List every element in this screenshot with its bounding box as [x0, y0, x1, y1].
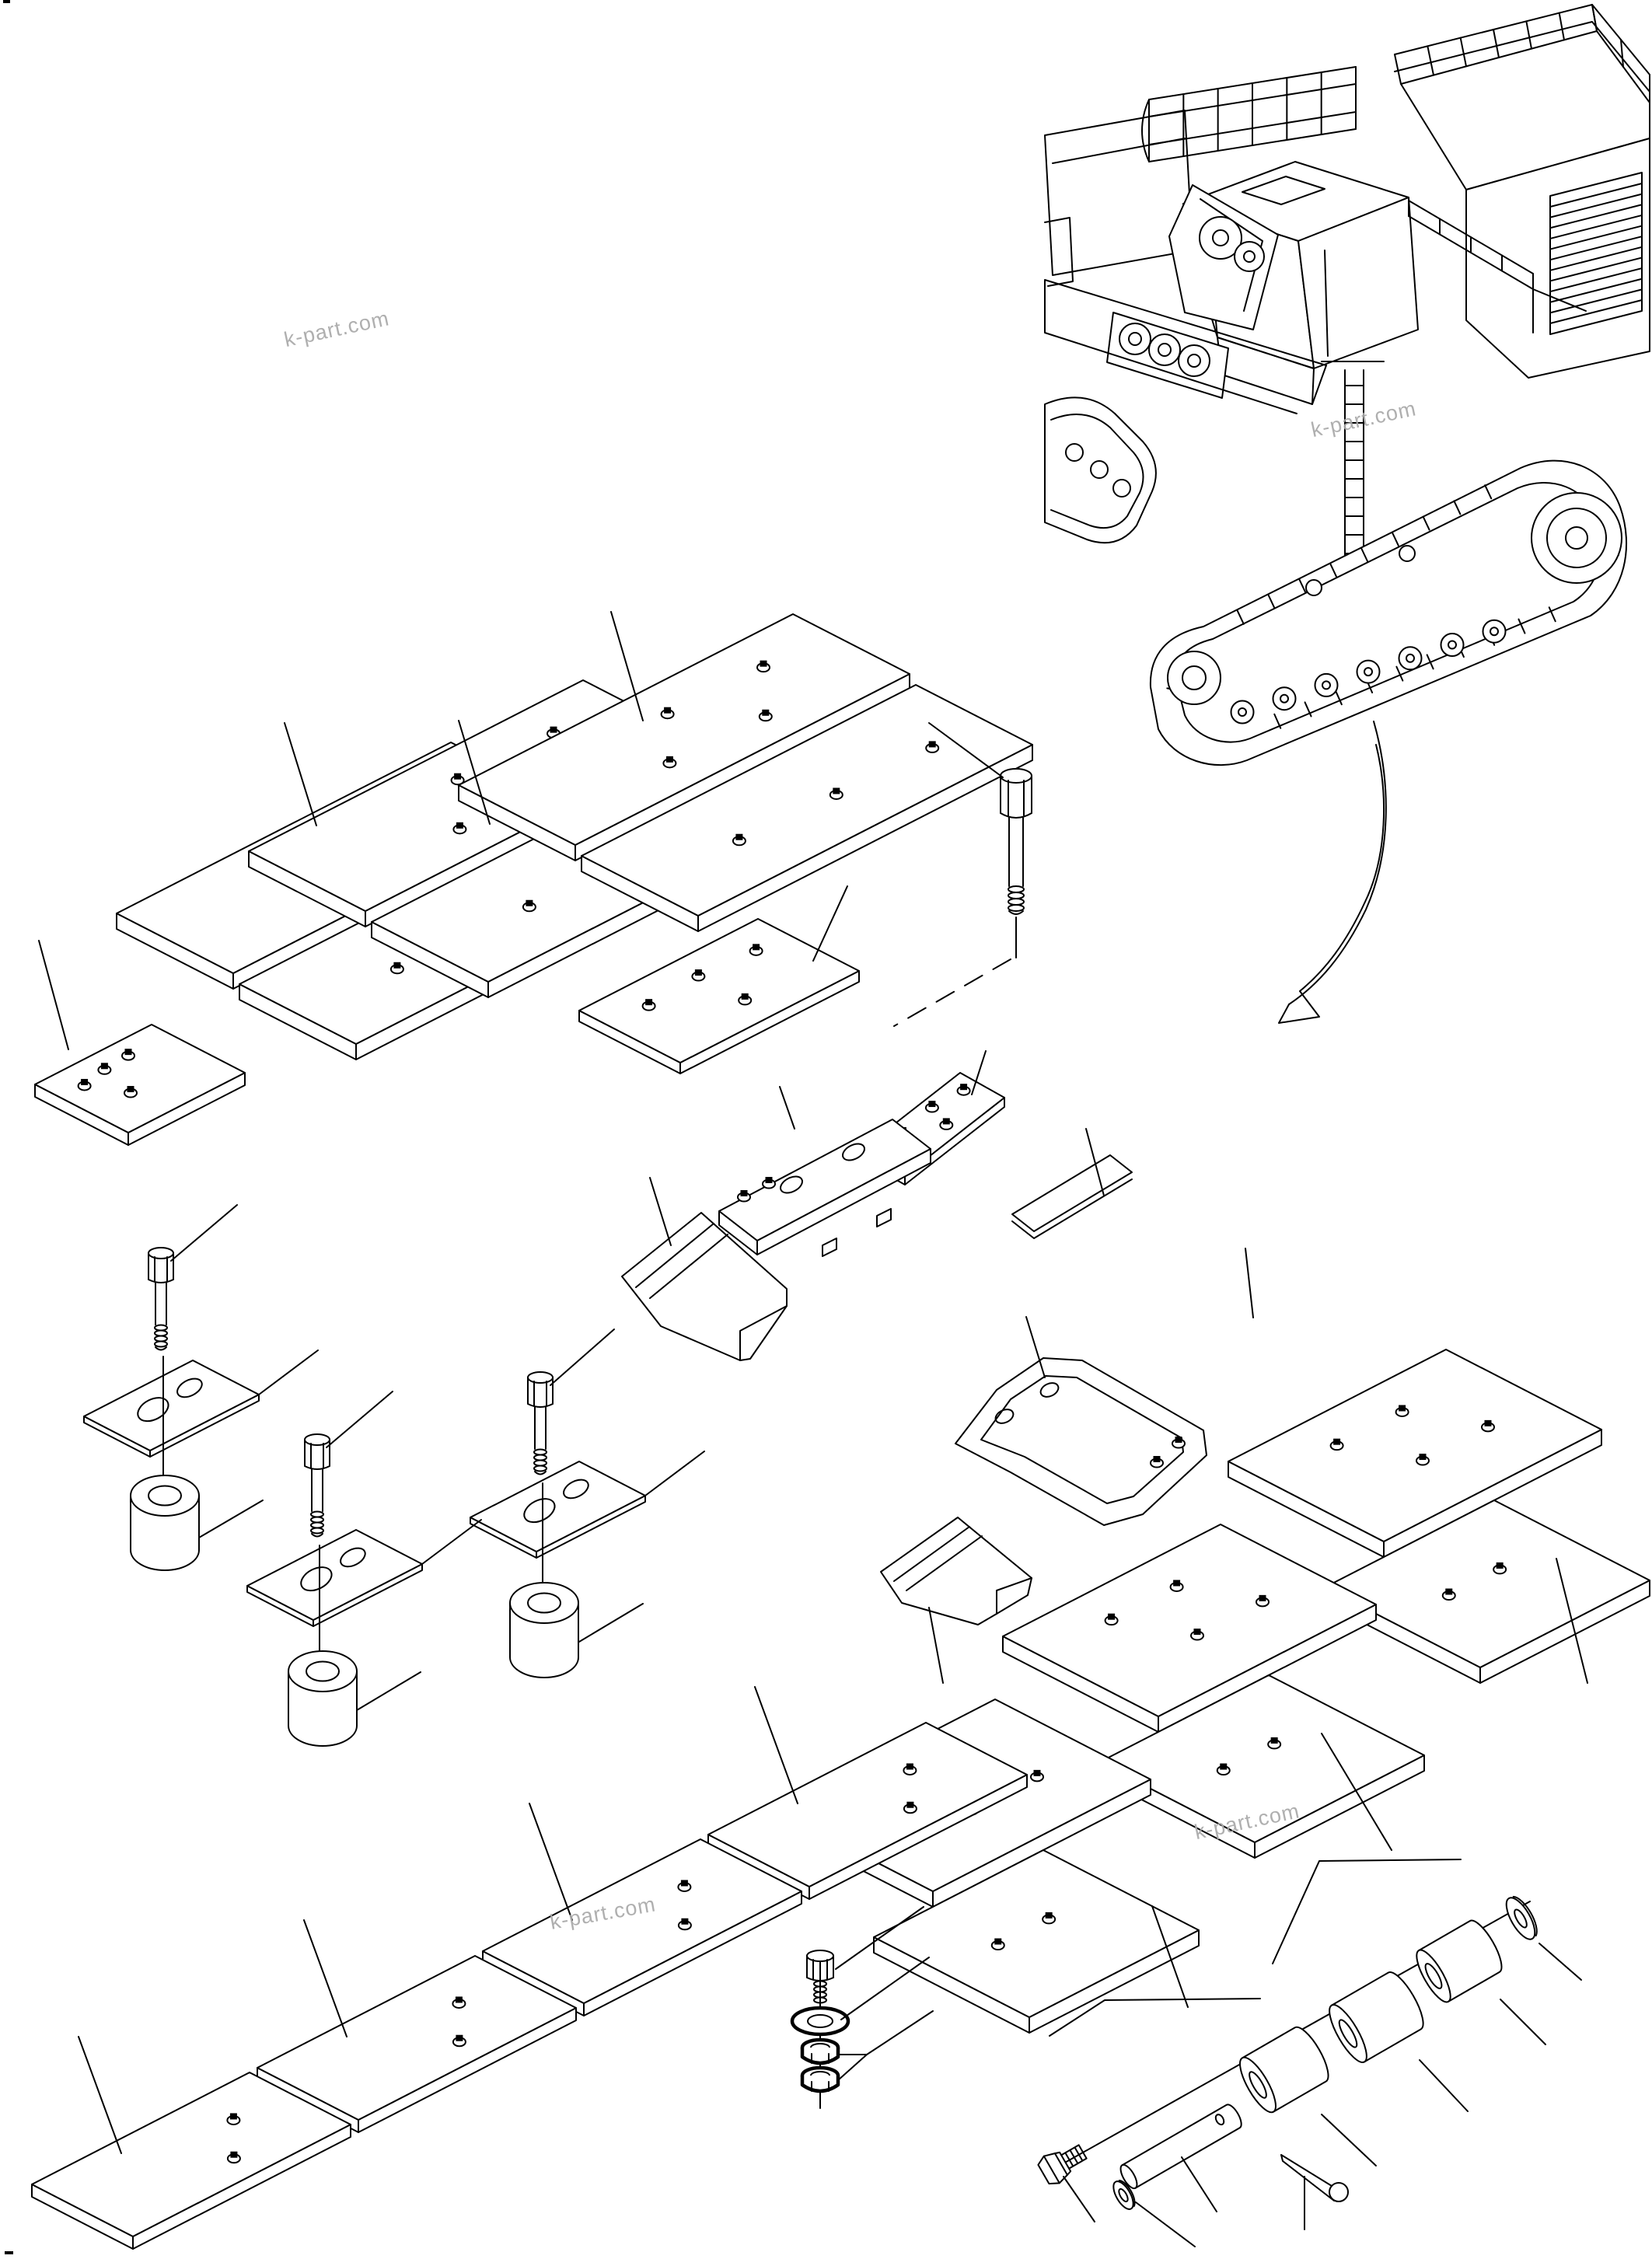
leader-line	[780, 1087, 795, 1129]
carrier-roller	[1399, 546, 1415, 561]
leader-line	[1322, 2114, 1376, 2166]
leader-line	[529, 1803, 572, 1920]
arrowhead	[1279, 991, 1319, 1023]
pin	[1117, 2102, 1244, 2191]
hex-nut-1	[802, 2040, 838, 2063]
hex-bolt-1	[148, 1248, 173, 1350]
cotter-pin	[1281, 2155, 1348, 2201]
pulley	[1235, 242, 1264, 271]
washer-plate-1	[84, 1360, 259, 1457]
leader-line	[929, 1608, 943, 1683]
leader-line	[867, 2011, 933, 2055]
road-wheel	[1315, 674, 1338, 697]
roller-3	[1411, 1916, 1508, 2006]
leader-line	[327, 1391, 393, 1447]
hex-bolt-3	[528, 1372, 553, 1475]
leader-line	[1136, 2202, 1195, 2247]
registration-mark-top-left	[3, 0, 10, 3]
leader-line	[1245, 1248, 1253, 1318]
leader-line	[199, 1500, 263, 1538]
drive-sprocket	[1532, 493, 1622, 583]
watermark: k-part.com	[282, 306, 392, 351]
bushing-2	[288, 1651, 357, 1746]
clamp-bar	[719, 1119, 931, 1256]
leader-line	[171, 1205, 237, 1261]
diagram-canvas: k-part.com k-part.com k-part.com k-part.…	[0, 0, 1652, 2259]
road-wheel	[1483, 620, 1506, 643]
machine-illustration	[1045, 5, 1650, 765]
leader-line	[285, 723, 316, 826]
leader-line	[79, 2037, 121, 2153]
bolt-washer-nut-stack	[792, 1950, 849, 2108]
washer-plate-3	[470, 1461, 645, 1558]
mid-parts	[622, 1119, 1207, 1625]
bushing-3	[510, 1583, 578, 1678]
bracket-plate	[955, 1358, 1207, 1525]
washer-plate-2	[247, 1530, 422, 1626]
roller-2	[1323, 1967, 1430, 2067]
carrier-roller	[1306, 580, 1322, 595]
stepped-block-2	[881, 1517, 1032, 1625]
leader-line	[579, 1604, 643, 1642]
thin-strip	[1012, 1155, 1132, 1238]
leader-line	[650, 1178, 671, 1245]
curved-arrow	[1279, 721, 1386, 1023]
leader-line	[813, 886, 847, 961]
parts-diagram-page: k-part.com k-part.com k-part.com k-part.…	[0, 0, 1652, 2259]
leader-line	[357, 1672, 421, 1710]
plate-e	[579, 919, 859, 1074]
leader-line	[304, 1920, 347, 2037]
leader-line	[259, 1350, 318, 1395]
leader-line	[1420, 2060, 1468, 2111]
leader-line	[1182, 2157, 1217, 2212]
bushing-1	[131, 1475, 199, 1570]
road-wheel	[1231, 701, 1254, 724]
road-wheel	[1357, 661, 1380, 683]
hex-nut-2	[802, 2068, 838, 2091]
registration-mark-bottom-left	[5, 2251, 13, 2254]
leader-line	[838, 2055, 867, 2080]
dashed-locator-line	[894, 959, 1011, 1026]
end-washer	[1501, 1893, 1542, 1943]
road-wheel	[1441, 634, 1464, 656]
leader-line	[550, 1329, 614, 1385]
leader-line	[1063, 2177, 1095, 2222]
roller-1	[1234, 2023, 1335, 2117]
leader-line	[1539, 1943, 1581, 1980]
counterweight	[1045, 110, 1193, 275]
lock-washer	[792, 2008, 849, 2034]
hex-bolt-2	[305, 1434, 330, 1537]
leader-line	[755, 1687, 798, 1803]
idler-wheel	[1168, 651, 1221, 704]
leader-line	[645, 1451, 704, 1496]
hex-bolt-small	[1036, 2139, 1090, 2188]
leader-line	[422, 1520, 481, 1564]
leader-line	[1500, 1999, 1545, 2044]
road-wheel	[1273, 687, 1296, 710]
road-wheel	[1399, 647, 1422, 669]
leader-line	[841, 1957, 929, 2020]
leader-line	[39, 941, 68, 1049]
